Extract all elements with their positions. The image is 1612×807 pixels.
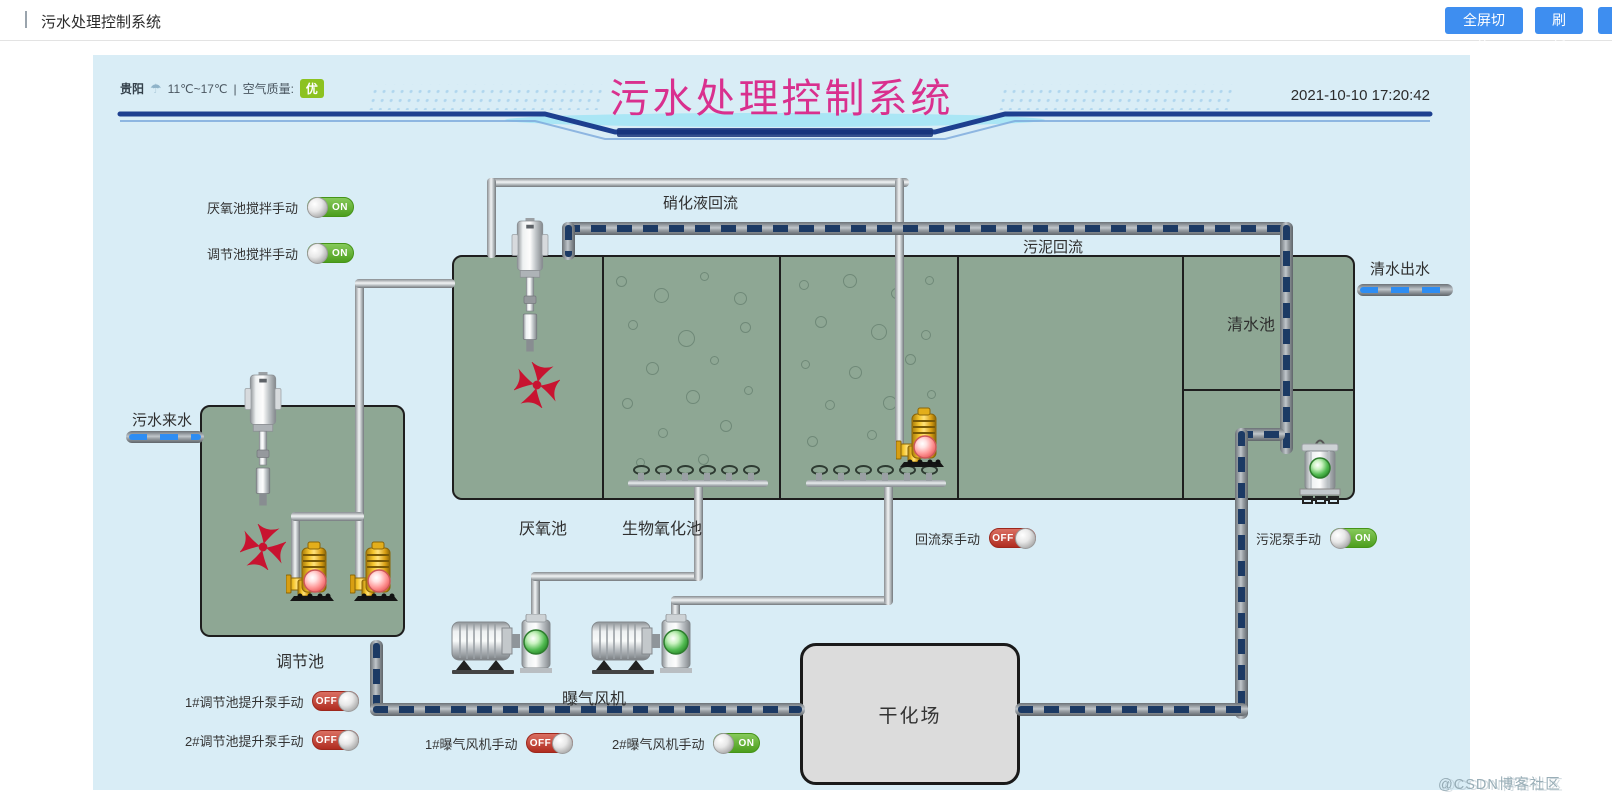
toggle-state: ON <box>327 202 353 213</box>
toggle-state: ON <box>1350 533 1376 544</box>
pipe-clean-water-outlet <box>1357 284 1453 296</box>
toggle-row-return-pump: 回流泵手动 OFF <box>915 528 1036 548</box>
mixer-regulation <box>233 372 293 522</box>
toggle-row-anaerobic-mixer: 厌氧池搅拌手动 ON <box>207 197 354 217</box>
pipe-lift-pump1 <box>291 512 364 521</box>
toggle-row-blower-1: 1#曝气风机手动 OFF <box>425 733 573 753</box>
toggle-row-lift-pump-2: 2#调节池提升泵手动 OFF <box>185 730 359 750</box>
lift-pump-2 <box>350 540 402 602</box>
pipe-nitrification-return <box>487 178 496 258</box>
label-bio-oxidation-tank: 生物氧化池 <box>622 515 702 539</box>
partial-button[interactable] <box>1598 7 1612 34</box>
toggle-label: 1#曝气风机手动 <box>425 734 517 753</box>
pipe-aeration-1 <box>531 572 703 581</box>
toggle-knob <box>1330 528 1351 549</box>
pipe-sludge-to-drying <box>1235 428 1248 719</box>
toggle-label: 调节池搅拌手动 <box>207 244 298 263</box>
toggle-knob <box>338 691 359 712</box>
drying-yard-label: 干化场 <box>878 701 941 728</box>
toggle-switch[interactable]: OFF <box>312 730 359 750</box>
toggle-label: 厌氧池搅拌手动 <box>207 198 298 217</box>
tank-divider <box>1182 257 1184 498</box>
toggle-switch[interactable]: OFF <box>526 733 573 753</box>
toggle-switch[interactable]: ON <box>1330 528 1377 548</box>
regulation-tank <box>200 405 405 637</box>
toggle-knob <box>713 733 734 754</box>
toggle-switch[interactable]: ON <box>307 243 354 263</box>
impeller-icon <box>514 362 560 408</box>
toggle-knob <box>1015 528 1036 549</box>
toggle-switch[interactable]: OFF <box>312 691 359 711</box>
mixer-anaerobic <box>500 218 560 368</box>
toggle-label: 2#曝气风机手动 <box>612 734 704 753</box>
drying-yard: 干化场 <box>800 643 1020 785</box>
pipe-sludge-return <box>562 222 575 260</box>
refresh-button[interactable]: 刷新 <box>1535 7 1583 34</box>
toggle-label: 回流泵手动 <box>915 529 980 548</box>
label-aeration-blower: 曝气风机 <box>562 685 626 709</box>
sludge-pump <box>1294 438 1346 504</box>
fullscreen-button[interactable]: 全屏切换 <box>1445 7 1523 34</box>
watermark: @CSDN博客社区 <box>1438 773 1561 794</box>
label-sludge-return: 污泥回流 <box>1023 236 1083 257</box>
toggle-row-blower-2: 2#曝气风机手动 ON <box>612 733 760 753</box>
tank-divider <box>957 257 959 498</box>
toggle-state: ON <box>327 248 353 259</box>
toggle-switch[interactable]: ON <box>713 733 760 753</box>
toggle-state: OFF <box>527 738 553 749</box>
label-anaerobic-tank: 厌氧池 <box>519 515 567 539</box>
label-sewage-in: 污水来水 <box>132 409 192 430</box>
toggle-state: ON <box>733 738 759 749</box>
label-nitrification-return: 硝化液回流 <box>663 192 738 213</box>
toggle-row-regulation-mixer: 调节池搅拌手动 ON <box>207 243 354 263</box>
toggle-label: 1#调节池提升泵手动 <box>185 692 303 711</box>
pipe-sludge-riser <box>1280 222 1293 454</box>
toggle-knob <box>552 733 573 754</box>
toggle-label: 2#调节池提升泵手动 <box>185 731 303 750</box>
toggle-row-lift-pump-1: 1#调节池提升泵手动 OFF <box>185 691 359 711</box>
pipe-sewage-inlet <box>126 431 204 443</box>
pipe-sludge-to-drying <box>1015 703 1248 716</box>
tank-divider <box>1182 389 1353 391</box>
screen: 污水处理控制系统 全屏切换 刷新 贵阳 ☂ 11℃~17℃ | 空气质量: 优 … <box>0 0 1612 807</box>
top-bar: 污水处理控制系统 全屏切换 刷新 <box>0 0 1612 41</box>
label-clean-water-tank: 清水池 <box>1227 311 1275 335</box>
toggle-state: OFF <box>313 735 339 746</box>
return-pump <box>896 406 948 468</box>
toggle-knob <box>307 197 328 218</box>
impeller-icon <box>240 524 286 570</box>
aeration-blower-1 <box>450 614 560 676</box>
toggle-state: OFF <box>313 696 339 707</box>
pipe-lift-to-anaerobic <box>355 279 455 288</box>
pipe-aeration-2 <box>671 596 893 605</box>
diffuser-manifold <box>628 461 768 487</box>
label-clean-water-out: 清水出水 <box>1370 258 1430 279</box>
toggle-label: 污泥泵手动 <box>1256 529 1321 548</box>
toggle-knob <box>338 730 359 751</box>
toggle-state: OFF <box>990 533 1016 544</box>
datetime: 2021-10-10 17:20:42 <box>1230 87 1430 104</box>
lift-pump-1 <box>286 540 338 602</box>
pipe-aeration-2-riser <box>884 484 893 605</box>
toggle-switch[interactable]: OFF <box>989 528 1036 548</box>
label-regulation-tank: 调节池 <box>276 648 324 672</box>
toggle-knob <box>307 243 328 264</box>
pipe-nitrification-return <box>487 178 909 187</box>
app-title: 污水处理控制系统 <box>41 11 161 32</box>
title-divider <box>25 11 27 28</box>
toggle-switch[interactable]: ON <box>307 197 354 217</box>
toggle-row-sludge-pump: 污泥泵手动 ON <box>1256 528 1377 548</box>
aeration-blower-2 <box>590 614 700 676</box>
pipe-sludge-return <box>562 222 1293 235</box>
